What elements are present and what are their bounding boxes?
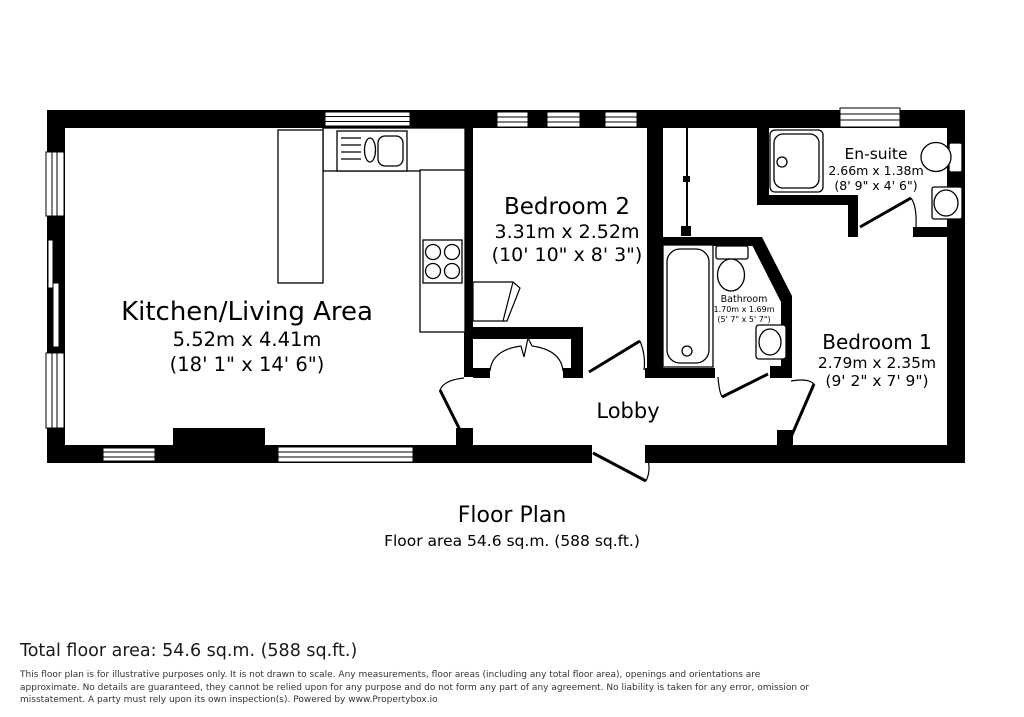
- room-dims-imperial: (18' 1" x 14' 6"): [121, 352, 373, 377]
- kitchen-door: [440, 378, 464, 434]
- room-name: Lobby: [596, 399, 659, 423]
- room-dims-metric: 5.52m x 4.41m: [121, 327, 373, 352]
- hob: [423, 240, 462, 283]
- bottom-window-small: [103, 448, 155, 461]
- room-name: Bedroom 2: [492, 194, 643, 221]
- room-dims-imperial: (8' 9" x 4' 6"): [828, 178, 923, 193]
- room-label-en-suite: En-suite 2.66m x 1.38m (8' 9" x 4' 6"): [828, 146, 923, 193]
- plan-title: Floor Plan: [0, 503, 1024, 528]
- room-label-bedroom-2: Bedroom 2 3.31m x 2.52m (10' 10" x 8' 3"…: [492, 194, 643, 267]
- kitchen-sink-unit: [337, 131, 407, 171]
- bedroom2-window-3: [605, 112, 637, 127]
- lobby-arch-opening: [490, 338, 563, 371]
- room-label-bathroom: Bathroom 1.70m x 1.69m (5' 7" x 5' 7"): [713, 294, 774, 325]
- disclaimer-line-1: This floor plan is for illustrative purp…: [20, 669, 760, 682]
- room-name: En-suite: [828, 146, 923, 163]
- disclaimer-line-2: approximate. No details are guaranteed, …: [20, 682, 809, 695]
- room-name: Kitchen/Living Area: [121, 297, 373, 327]
- left-window-top: [46, 152, 64, 216]
- bottom-window-wide: [278, 447, 413, 462]
- bathroom-sink: [756, 325, 786, 359]
- bathtub: [663, 245, 713, 367]
- room-dims-metric: 2.66m x 1.38m: [828, 163, 923, 178]
- bedroom2-window-2: [547, 112, 580, 127]
- bedroom2-door: [589, 341, 645, 372]
- total-floor-area: Total floor area: 54.6 sq.m. (588 sq.ft.…: [20, 641, 357, 661]
- floor-plan-page: Kitchen/Living Area 5.52m x 4.41m (18' 1…: [0, 0, 1024, 717]
- shower: [770, 130, 823, 192]
- bedroom2-window-1: [497, 112, 528, 127]
- room-dims-metric: 3.31m x 2.52m: [492, 221, 643, 244]
- ensuite-sink: [932, 187, 962, 219]
- room-dims-imperial: (5' 7" x 5' 7"): [713, 315, 774, 325]
- room-dims-imperial: (10' 10" x 8' 3"): [492, 244, 643, 267]
- room-name: Bathroom: [713, 294, 774, 305]
- room-label-lobby: Lobby: [596, 399, 659, 423]
- bedroom2-wardrobe: [473, 282, 520, 321]
- room-dims-imperial: (9' 2" x 7' 9"): [818, 372, 936, 390]
- front-door-opening: [592, 444, 645, 464]
- plan-subtitle: Floor area 54.6 sq.m. (588 sq.ft.): [0, 532, 1024, 550]
- bathroom-door: [718, 374, 768, 397]
- left-window-bottom: [46, 353, 64, 428]
- ensuite-window: [840, 108, 900, 127]
- ensuite-toilet: [921, 143, 962, 173]
- room-label-bedroom-1: Bedroom 1 2.79m x 2.35m (9' 2" x 7' 9"): [818, 331, 936, 390]
- bathroom-toilet: [716, 246, 748, 291]
- bedroom1-door: [791, 380, 814, 437]
- room-dims-metric: 1.70m x 1.69m: [713, 305, 774, 315]
- room-dims-metric: 2.79m x 2.35m: [818, 354, 936, 372]
- room-label-kitchen-living: Kitchen/Living Area 5.52m x 4.41m (18' 1…: [121, 297, 373, 377]
- ensuite-door: [860, 198, 916, 227]
- partition-wall: [681, 128, 691, 236]
- kitchen-window: [325, 112, 410, 126]
- exterior-walls: [47, 110, 965, 463]
- disclaimer-line-3: misstatement. A party must rely upon its…: [20, 694, 438, 707]
- room-name: Bedroom 1: [818, 331, 936, 354]
- hearth-block: [173, 428, 265, 448]
